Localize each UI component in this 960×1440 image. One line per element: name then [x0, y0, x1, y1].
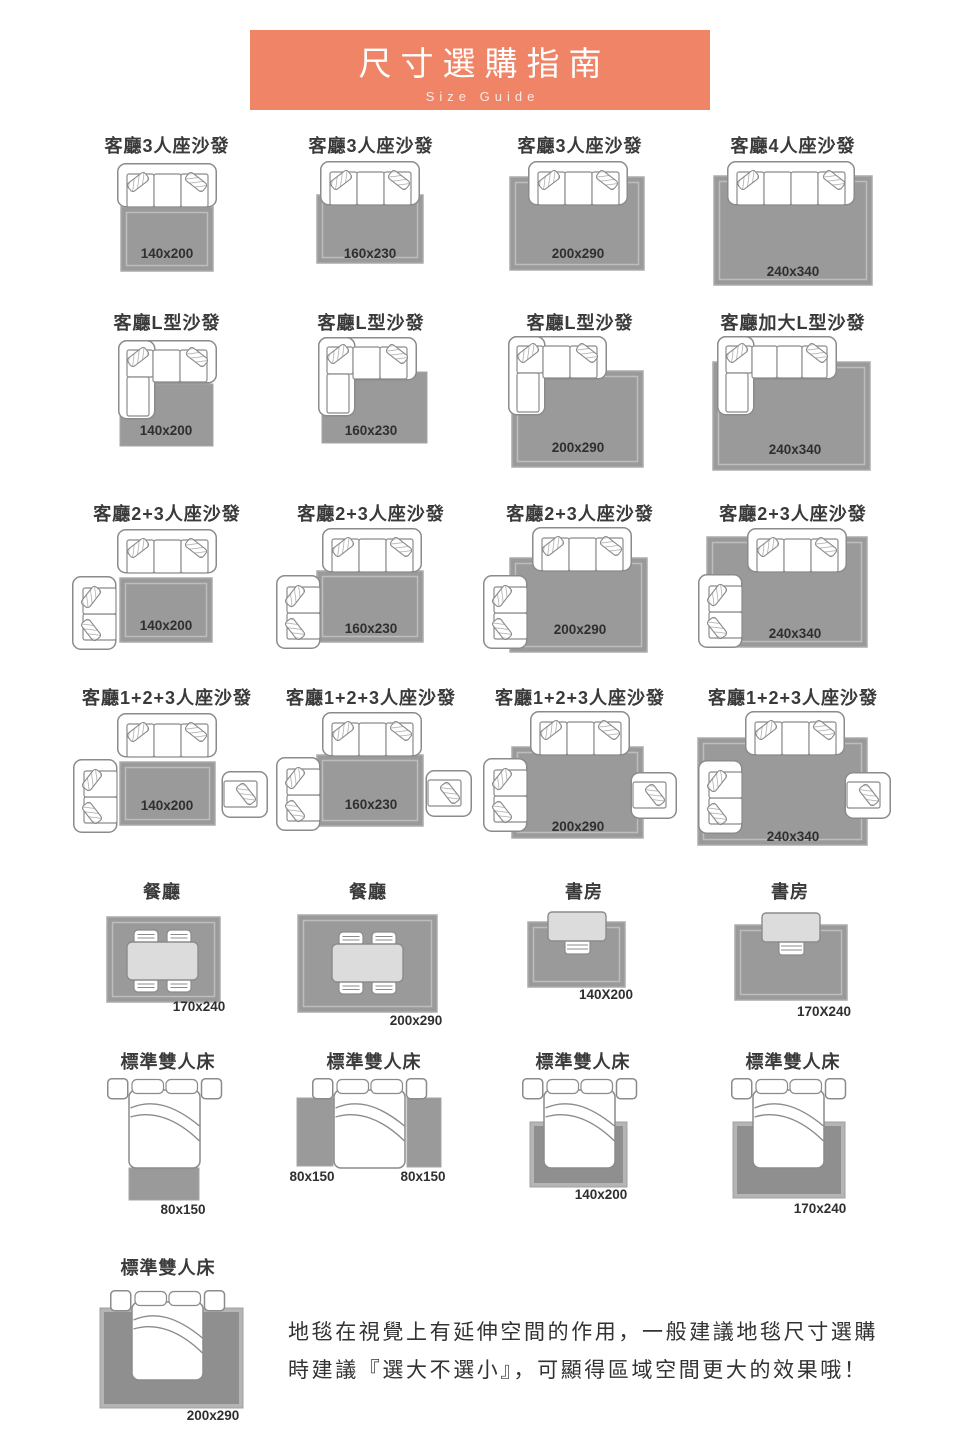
- cell-title: 餐廳: [349, 878, 387, 904]
- illustrations: [0, 0, 960, 1440]
- cell-title: 標準雙人床: [121, 1254, 216, 1280]
- cell-title: 客廳L型沙發: [318, 309, 425, 335]
- size-label: 80x150: [400, 1169, 445, 1184]
- sofa-3-seat: [118, 530, 217, 573]
- size-label: 140x200: [140, 423, 193, 438]
- armchair: [222, 772, 267, 818]
- size-label: 200x290: [552, 819, 605, 834]
- cell-title: 客廳2+3人座沙發: [506, 500, 654, 526]
- cell-title: 客廳加大L型沙發: [721, 309, 866, 335]
- size-label: 170X240: [797, 1004, 851, 1019]
- footer-note: 地毯在視覺上有延伸空間的作用，一般建議地毯尺寸選購 時建議『選大不選小』，可顯得…: [288, 1314, 928, 1390]
- size-label: 140x200: [575, 1187, 628, 1202]
- size-label: 160x230: [345, 621, 398, 636]
- cell-title: 書房: [565, 878, 603, 904]
- cell-title: 客廳1+2+3人座沙發: [82, 684, 252, 710]
- cell-title: 客廳L型沙發: [527, 309, 634, 335]
- row7-col1: [100, 1291, 243, 1408]
- sofa-3-seat: [531, 712, 630, 755]
- cell-title: 客廳3人座沙發: [517, 132, 642, 158]
- cell-title: 客廳1+2+3人座沙發: [286, 684, 456, 710]
- sofa-3-seat: [746, 712, 845, 755]
- header-banner: 尺寸選購指南 Size Guide: [250, 30, 710, 110]
- size-label: 170x240: [794, 1201, 847, 1216]
- row6-col3: [523, 1079, 637, 1187]
- sofa-2-seat: [277, 576, 320, 649]
- sofa-2-seat: [484, 759, 527, 832]
- rug-140x200: [121, 207, 213, 271]
- cell-title: 客廳L型沙發: [114, 309, 221, 335]
- sofa-3-seat: [118, 714, 217, 757]
- footer-line2: 時建議『選大不選小』，可顯得區域空間更大的效果哦！: [288, 1352, 928, 1390]
- page-subtitle: Size Guide: [421, 89, 540, 104]
- size-label: 240x340: [767, 829, 820, 844]
- size-label: 240x340: [769, 442, 822, 457]
- size-label: 200x290: [390, 1013, 443, 1028]
- size-label: 160x230: [345, 423, 398, 438]
- cell-title: 標準雙人床: [536, 1048, 631, 1074]
- size-label: 200x290: [554, 622, 607, 637]
- size-guide-page: 尺寸選購指南 Size Guide 客廳3人座沙發 客廳3人座沙發 客廳3人座沙…: [0, 0, 960, 1440]
- sofa-4-seat: [728, 162, 855, 205]
- rug-80x150-right: [407, 1098, 441, 1167]
- armchair: [845, 773, 890, 819]
- size-label: 200x290: [187, 1408, 240, 1423]
- cell-title: 客廳3人座沙發: [104, 132, 229, 158]
- sofa-3-seat: [118, 164, 217, 207]
- row5-col2: [298, 915, 437, 1012]
- size-label: 80x150: [160, 1202, 205, 1217]
- size-label: 140x200: [141, 246, 194, 261]
- size-label: 160x230: [344, 246, 397, 261]
- size-label: 140x200: [140, 618, 193, 633]
- size-label: 170x240: [173, 999, 226, 1014]
- row4-col4: [698, 712, 890, 845]
- sofa-3-seat: [323, 713, 422, 756]
- cell-title: 客廳2+3人座沙發: [719, 500, 867, 526]
- sofa-2-seat: [73, 577, 116, 650]
- sofa-3-seat: [321, 162, 420, 205]
- size-label: 80x150: [289, 1169, 334, 1184]
- size-label: 200x290: [552, 246, 605, 261]
- cell-title: 客廳4人座沙發: [730, 132, 855, 158]
- size-label: 200x290: [552, 440, 605, 455]
- cell-title: 書房: [771, 878, 809, 904]
- sofa-2-seat: [74, 760, 117, 833]
- sofa-2-seat: [699, 761, 742, 834]
- cell-title: 客廳1+2+3人座沙發: [708, 684, 878, 710]
- rug-80x150-left: [297, 1098, 333, 1166]
- sofa-3-seat: [529, 162, 628, 205]
- row4-col2: [277, 713, 472, 831]
- rug-160x230: [317, 755, 423, 826]
- sofa-2-seat: [484, 576, 527, 649]
- row6-col1: [108, 1079, 222, 1200]
- rug-140x200: [120, 762, 215, 825]
- rug-80x150: [129, 1168, 199, 1200]
- sofa-3-seat: [323, 529, 422, 572]
- cell-title: 客廳3人座沙發: [308, 132, 433, 158]
- cell-title: 餐廳: [143, 878, 181, 904]
- double-bed: [108, 1079, 222, 1168]
- cell-title: 客廳2+3人座沙發: [93, 500, 241, 526]
- sofa-3-seat: [533, 528, 632, 571]
- sofa-2-seat: [277, 758, 320, 831]
- page-title: 尺寸選購指南: [350, 37, 611, 85]
- cell-title: 標準雙人床: [746, 1048, 841, 1074]
- cell-title: 標準雙人床: [121, 1048, 216, 1074]
- row6-col2: [297, 1079, 441, 1168]
- cell-title: 客廳1+2+3人座沙發: [495, 684, 665, 710]
- size-label: 240x340: [767, 264, 820, 279]
- row6-col4: [732, 1079, 846, 1198]
- armchair: [631, 773, 676, 819]
- row5-col4: [735, 913, 847, 1000]
- size-label: 240x340: [769, 626, 822, 641]
- size-label: 140x200: [141, 798, 194, 813]
- row5-col1: [107, 917, 220, 1002]
- cell-title: 標準雙人床: [327, 1048, 422, 1074]
- cell-title: 客廳2+3人座沙發: [297, 500, 445, 526]
- size-label: 160x230: [345, 797, 398, 812]
- sofa-2-seat: [699, 575, 742, 648]
- row5-col3: [528, 912, 625, 987]
- rug-200x290: [510, 558, 647, 652]
- row4-col1: [74, 714, 268, 833]
- sofa-3-seat: [748, 529, 847, 572]
- size-label: 140X200: [579, 987, 633, 1002]
- footer-line1: 地毯在視覺上有延伸空間的作用，一般建議地毯尺寸選購: [288, 1314, 928, 1352]
- armchair: [426, 771, 471, 817]
